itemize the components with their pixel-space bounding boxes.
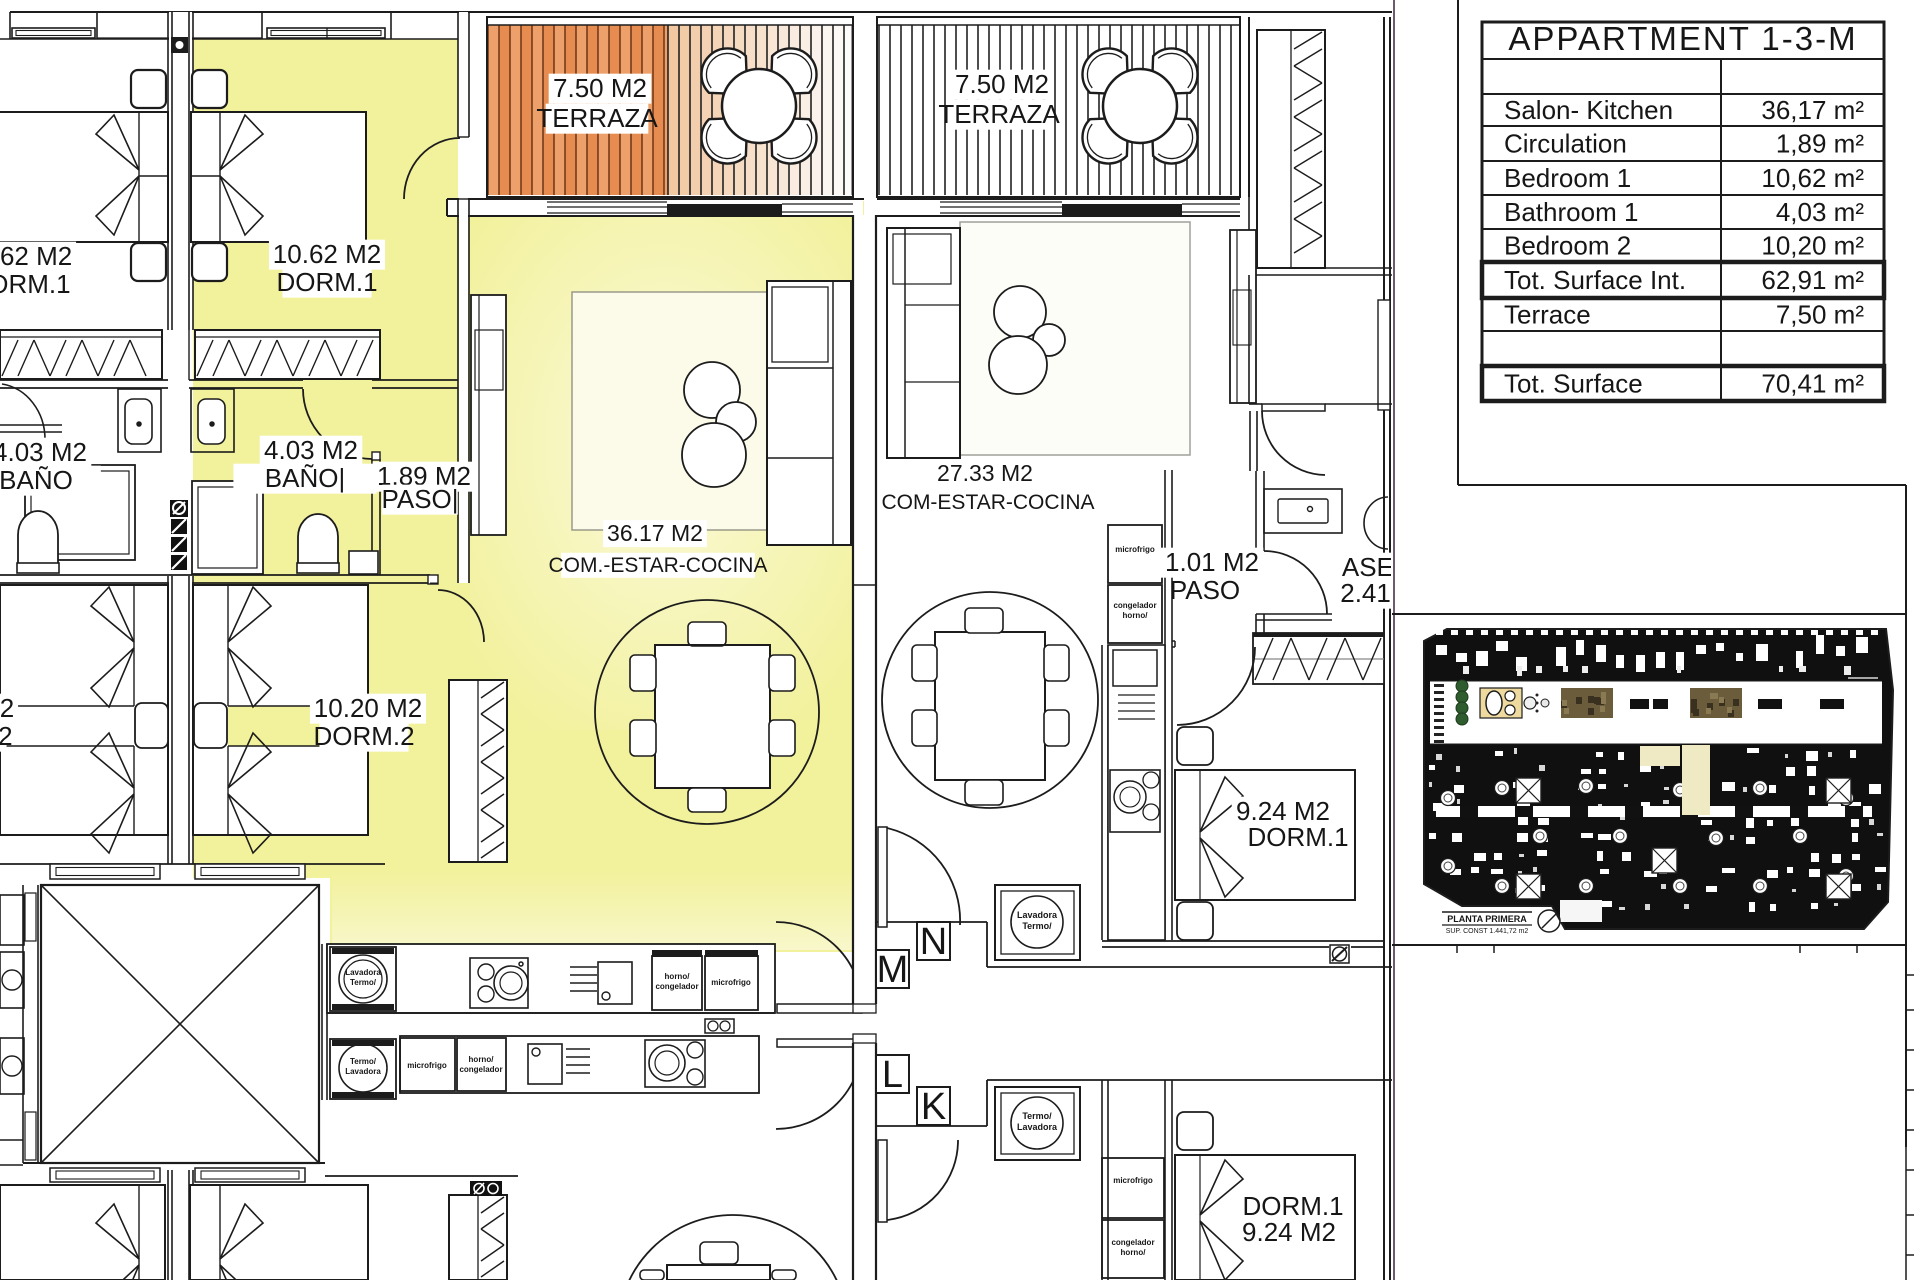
svg-text:PASO: PASO — [1170, 575, 1240, 605]
svg-text:7.50 M2: 7.50 M2 — [553, 73, 647, 103]
svg-text:Termo/: Termo/ — [1022, 1111, 1052, 1121]
svg-text:10.20 M2: 10.20 M2 — [0, 693, 14, 723]
svg-text:congelador: congelador — [459, 1065, 502, 1074]
svg-text:4.03 M2: 4.03 M2 — [264, 435, 358, 465]
svg-text:Terrace: Terrace — [1504, 300, 1591, 330]
svg-text:SUP. CONST 1.441,72 m2: SUP. CONST 1.441,72 m2 — [1446, 928, 1529, 935]
svg-text:DORM.1: DORM.1 — [276, 267, 377, 297]
svg-text:Termo/: Termo/ — [1022, 921, 1052, 931]
svg-text:microfrigo: microfrigo — [407, 1061, 447, 1070]
svg-text:BAÑO: BAÑO — [0, 465, 73, 495]
svg-text:Termo/: Termo/ — [350, 1057, 377, 1066]
svg-text:TERRAZA: TERRAZA — [938, 99, 1060, 129]
svg-text:microfrigo: microfrigo — [711, 978, 751, 987]
svg-text:4,03 m²: 4,03 m² — [1776, 197, 1864, 227]
svg-text:M: M — [877, 949, 909, 991]
svg-text:Termo/: Termo/ — [350, 978, 377, 987]
svg-text:10.20 M2: 10.20 M2 — [314, 693, 422, 723]
svg-text:BAÑO|: BAÑO| — [265, 463, 345, 493]
svg-text:congelador: congelador — [1111, 1238, 1154, 1247]
svg-text:DORM.2: DORM.2 — [313, 721, 414, 751]
svg-text:APPARTMENT 1-3-M: APPARTMENT 1-3-M — [1508, 20, 1857, 57]
svg-text:horno/: horno/ — [1121, 1248, 1147, 1257]
svg-text:1,89 m²: 1,89 m² — [1776, 129, 1864, 159]
svg-text:70,41 m²: 70,41 m² — [1761, 369, 1864, 399]
svg-text:Salon- Kitchen: Salon- Kitchen — [1504, 95, 1673, 125]
svg-text:TERRAZA: TERRAZA — [536, 103, 658, 133]
svg-text:horno/: horno/ — [665, 972, 691, 981]
svg-text:7.50 M2: 7.50 M2 — [955, 69, 1049, 99]
svg-text:Bedroom 2: Bedroom 2 — [1504, 231, 1631, 261]
svg-text:1.01 M2: 1.01 M2 — [1165, 547, 1259, 577]
svg-text:Tot. Surface Int.: Tot. Surface Int. — [1504, 265, 1686, 295]
svg-text:PLANTA PRIMERA: PLANTA PRIMERA — [1447, 914, 1527, 924]
svg-text:congelador: congelador — [1113, 601, 1156, 610]
svg-text:10,20 m²: 10,20 m² — [1761, 231, 1864, 261]
svg-text:Bedroom 1: Bedroom 1 — [1504, 163, 1631, 193]
svg-text:7,50 m²: 7,50 m² — [1776, 300, 1864, 330]
svg-text:horno/: horno/ — [469, 1055, 495, 1064]
svg-text:Lavadora: Lavadora — [1017, 910, 1058, 920]
svg-text:9.24 M2: 9.24 M2 — [1242, 1217, 1336, 1247]
svg-text:DORM.1: DORM.1 — [1247, 822, 1348, 852]
svg-text:congelador: congelador — [655, 982, 698, 991]
svg-text:DORM.1: DORM.1 — [0, 269, 71, 299]
svg-text:62,91 m²: 62,91 m² — [1761, 265, 1864, 295]
svg-text:COM-ESTAR-COCINA: COM-ESTAR-COCINA — [881, 491, 1094, 514]
svg-text:microfrigo: microfrigo — [1115, 545, 1155, 554]
svg-text:Tot. Surface: Tot. Surface — [1504, 369, 1643, 399]
svg-text:microfrigo: microfrigo — [1113, 1176, 1153, 1185]
svg-text:horno/: horno/ — [1123, 611, 1149, 620]
svg-text:36,17 m²: 36,17 m² — [1761, 95, 1864, 125]
svg-text:K: K — [921, 1086, 946, 1128]
svg-text:DORM.2: DORM.2 — [0, 721, 13, 751]
svg-text:10.62 M2: 10.62 M2 — [273, 239, 381, 269]
svg-text:Bathroom 1: Bathroom 1 — [1504, 197, 1638, 227]
svg-text:Lavadora: Lavadora — [345, 968, 381, 977]
svg-text:N: N — [920, 921, 947, 963]
svg-text:Lavadora: Lavadora — [345, 1067, 381, 1076]
svg-text:Circulation: Circulation — [1504, 129, 1627, 159]
svg-text:36.17 M2: 36.17 M2 — [607, 520, 703, 546]
svg-text:PASO|: PASO| — [381, 484, 458, 514]
svg-text:4.03 M2: 4.03 M2 — [0, 437, 87, 467]
svg-text:Lavadora: Lavadora — [1017, 1122, 1058, 1132]
svg-text:L: L — [882, 1054, 903, 1096]
svg-text:COM.-ESTAR-COCINA: COM.-ESTAR-COCINA — [549, 554, 768, 577]
svg-text:10.62 M2: 10.62 M2 — [0, 241, 72, 271]
svg-text:10,62 m²: 10,62 m² — [1761, 163, 1864, 193]
svg-text:27.33 M2: 27.33 M2 — [937, 460, 1033, 486]
